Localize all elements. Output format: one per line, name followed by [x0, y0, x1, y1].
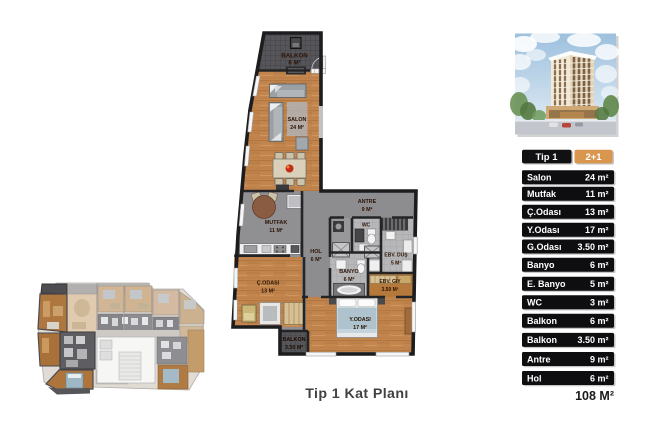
svg-text:WC: WC [527, 298, 542, 308]
svg-text:BALKON: BALKON [282, 337, 305, 343]
svg-text:Tip 1: Tip 1 [536, 152, 559, 163]
svg-text:Banyo: Banyo [527, 260, 555, 270]
svg-text:ANTRE: ANTRE [358, 199, 377, 205]
svg-text:6 M²: 6 M² [288, 59, 300, 66]
svg-text:3.50 m²: 3.50 m² [577, 242, 608, 252]
svg-text:G.Odası: G.Odası [527, 242, 562, 252]
svg-text:BANYO: BANYO [339, 269, 358, 275]
svg-text:Salon: Salon [527, 173, 552, 183]
svg-text:6 m²: 6 m² [590, 316, 609, 326]
svg-text:6 m²: 6 m² [590, 373, 609, 383]
svg-text:EBV. DUŞ: EBV. DUŞ [384, 253, 408, 259]
svg-text:24 m²: 24 m² [585, 173, 609, 183]
svg-text:11 M²: 11 M² [269, 228, 283, 234]
svg-text:17 m²: 17 m² [585, 225, 609, 235]
svg-text:SALON: SALON [288, 117, 307, 123]
svg-text:BALKON: BALKON [281, 52, 308, 59]
svg-text:3.50 M²: 3.50 M² [285, 345, 303, 351]
svg-text:Balkon: Balkon [527, 335, 557, 345]
svg-text:108 M²: 108 M² [575, 389, 614, 403]
svg-text:EBV. GIY: EBV. GIY [379, 279, 401, 285]
svg-text:Antre: Antre [527, 354, 551, 364]
svg-text:9 M²: 9 M² [362, 207, 373, 213]
svg-text:Mutfak: Mutfak [527, 189, 557, 199]
svg-text:Balkon: Balkon [527, 316, 557, 326]
svg-text:WC: WC [362, 223, 371, 229]
svg-text:9 m²: 9 m² [590, 354, 609, 364]
svg-text:E. Banyo: E. Banyo [527, 279, 566, 289]
svg-text:3.50 M²: 3.50 M² [382, 287, 399, 293]
svg-text:6 M²: 6 M² [311, 257, 322, 263]
svg-text:3 m²: 3 m² [590, 298, 609, 308]
svg-text:Y.Odası: Y.Odası [527, 225, 560, 235]
svg-text:5 m²: 5 m² [590, 279, 609, 289]
svg-text:Tip 1 Kat Planı: Tip 1 Kat Planı [305, 386, 409, 402]
svg-text:13 m²: 13 m² [585, 207, 609, 217]
svg-text:24 M²: 24 M² [290, 125, 304, 131]
svg-text:HOL: HOL [310, 249, 322, 255]
svg-text:17 M²: 17 M² [353, 325, 367, 331]
svg-text:6 m²: 6 m² [590, 260, 609, 270]
svg-text:3.50 m²: 3.50 m² [577, 335, 608, 345]
svg-text:Y.ODASI: Y.ODASI [349, 317, 371, 323]
svg-text:Hol: Hol [527, 373, 542, 383]
svg-text:Ç.ODASI: Ç.ODASI [257, 281, 280, 287]
svg-text:MUTFAK: MUTFAK [265, 220, 288, 226]
svg-text:13 M²: 13 M² [261, 289, 275, 295]
svg-text:6 M²: 6 M² [344, 277, 355, 283]
svg-text:2+1: 2+1 [585, 152, 602, 163]
svg-text:Ç.Odası: Ç.Odası [527, 207, 561, 217]
svg-text:5 M²: 5 M² [391, 261, 401, 267]
svg-text:11 m²: 11 m² [585, 189, 608, 199]
